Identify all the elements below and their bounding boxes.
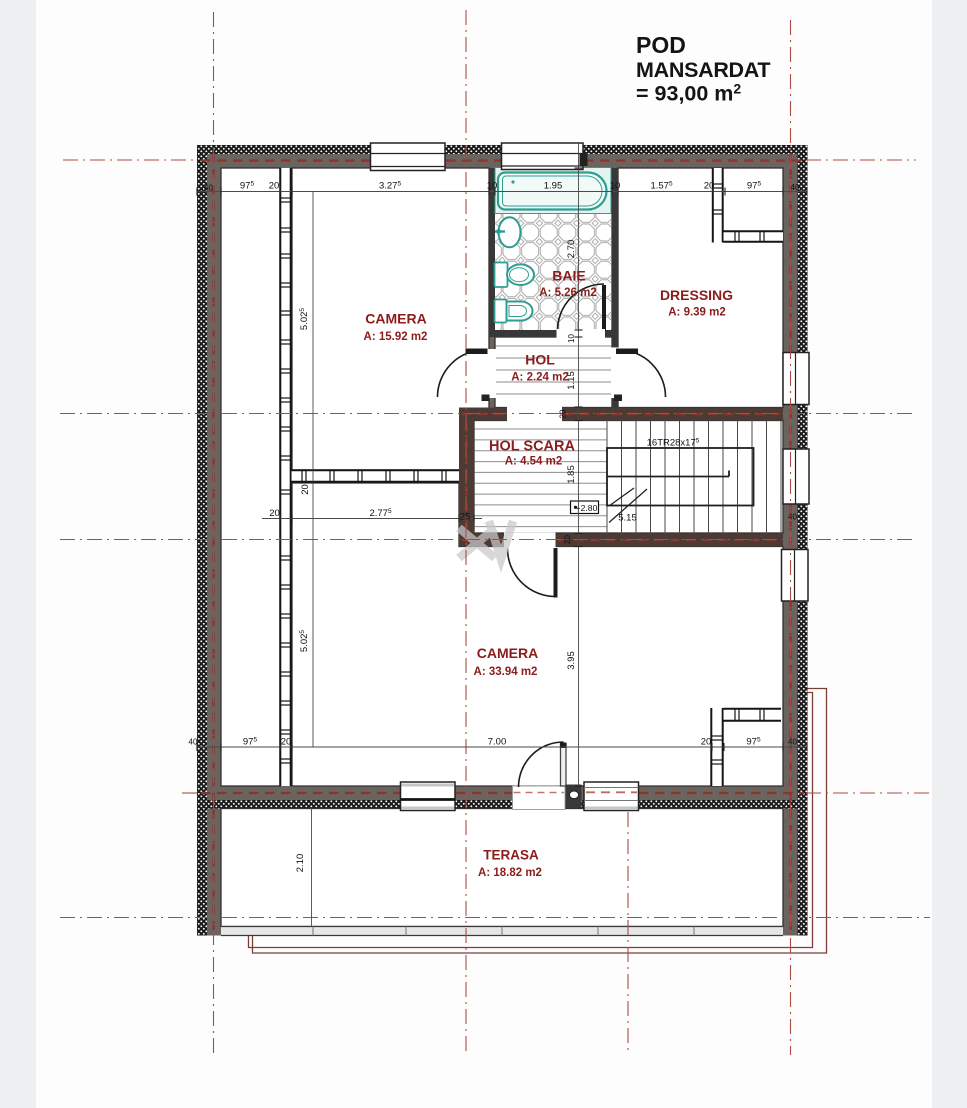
svg-text:25: 25 — [460, 512, 471, 523]
svg-text:10: 10 — [487, 181, 498, 192]
svg-text:20: 20 — [701, 737, 712, 748]
svg-text:20: 20 — [269, 508, 280, 519]
svg-text:40: 40 — [788, 738, 797, 747]
svg-text:POD: POD — [636, 32, 686, 58]
svg-text:10: 10 — [610, 181, 621, 192]
svg-text:20: 20 — [563, 535, 572, 544]
svg-text:A: 5.26 m2: A: 5.26 m2 — [539, 287, 597, 299]
svg-text:1.95: 1.95 — [544, 181, 563, 192]
svg-text:A: 4.54 m2: A: 4.54 m2 — [505, 456, 563, 468]
svg-text:5.15: 5.15 — [618, 513, 637, 524]
svg-text:HOL SCARA: HOL SCARA — [489, 439, 575, 455]
svg-text:20: 20 — [269, 181, 280, 192]
svg-text:40: 40 — [791, 183, 800, 192]
svg-text:HOL: HOL — [525, 352, 555, 368]
svg-text:1.85: 1.85 — [566, 465, 577, 484]
svg-text:10: 10 — [567, 334, 576, 343]
svg-text:20: 20 — [559, 409, 568, 418]
svg-text:MANSARDAT: MANSARDAT — [636, 58, 770, 82]
svg-text:2.70: 2.70 — [566, 240, 577, 259]
svg-text:CAMERA: CAMERA — [365, 311, 426, 327]
svg-text:40: 40 — [788, 513, 797, 522]
svg-text:20: 20 — [281, 737, 292, 748]
svg-text:= 93,00 m2: = 93,00 m2 — [636, 81, 741, 106]
svg-text:DRESSING: DRESSING — [660, 287, 733, 303]
svg-text:TERASA: TERASA — [483, 848, 539, 863]
svg-text:CAMERA: CAMERA — [477, 645, 538, 661]
svg-text:2.10: 2.10 — [295, 854, 306, 873]
svg-text:3.95: 3.95 — [566, 651, 577, 670]
svg-text:A: 2.24 m2: A: 2.24 m2 — [511, 372, 569, 384]
svg-text:7.00: 7.00 — [488, 737, 507, 748]
svg-text:A: 15.92 m2: A: 15.92 m2 — [364, 331, 428, 343]
svg-text:A: 33.94 m2: A: 33.94 m2 — [474, 666, 538, 678]
svg-text:A: 18.82 m2: A: 18.82 m2 — [478, 867, 542, 879]
svg-text:40: 40 — [189, 738, 198, 747]
svg-text:BAIE: BAIE — [552, 268, 585, 284]
svg-text:16TR28x175: 16TR28x175 — [647, 437, 700, 448]
svg-text:20: 20 — [300, 484, 311, 495]
svg-text:40: 40 — [204, 184, 213, 193]
svg-text:20: 20 — [704, 181, 715, 192]
svg-text:A: 9.39 m2: A: 9.39 m2 — [668, 307, 726, 319]
